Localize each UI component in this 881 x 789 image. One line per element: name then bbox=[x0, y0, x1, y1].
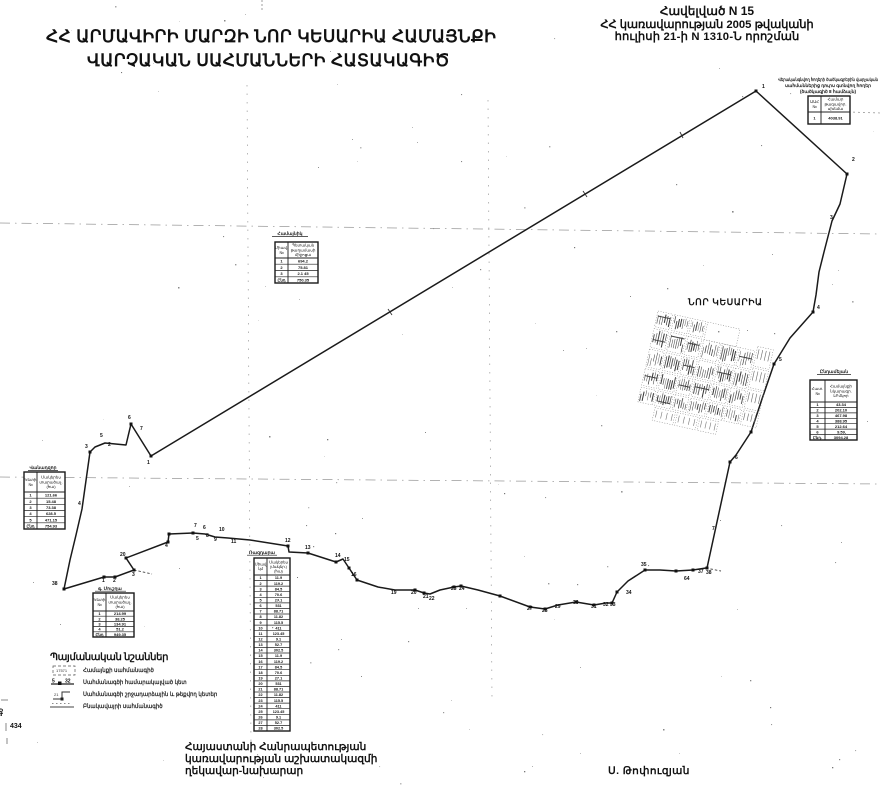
svg-text:2: 2 bbox=[259, 582, 261, 586]
svg-text:17: 17 bbox=[258, 665, 262, 669]
svg-text:11.82: 11.82 bbox=[274, 615, 283, 619]
svg-text:Վերականգնվող հողերի ծածկագրերի: Վերականգնվող հողերի ծածկագրերին վարչական bbox=[778, 76, 878, 83]
svg-text:միջոցա: միջոցա bbox=[295, 252, 311, 257]
svg-text:38: 38 bbox=[52, 581, 58, 587]
svg-text:20: 20 bbox=[120, 552, 126, 558]
svg-text:31: 31 bbox=[591, 604, 597, 610]
svg-text:12: 12 bbox=[258, 638, 262, 642]
svg-text:123.45: 123.45 bbox=[273, 710, 285, 714]
svg-text:(հա): (հա) bbox=[46, 484, 56, 489]
svg-text:531: 531 bbox=[275, 682, 281, 686]
svg-text:2.1 45: 2.1 45 bbox=[297, 271, 309, 276]
svg-text:70.6: 70.6 bbox=[275, 671, 282, 675]
svg-text:6: 6 bbox=[259, 604, 261, 608]
svg-text:1: 1 bbox=[102, 578, 105, 584]
svg-text:(հա): (հա) bbox=[274, 569, 283, 573]
svg-text:11.82: 11.82 bbox=[274, 693, 283, 697]
svg-text:64: 64 bbox=[684, 576, 690, 582]
svg-text:21: 21 bbox=[258, 688, 262, 692]
svg-text:27: 27 bbox=[258, 721, 262, 725]
svg-text:88.71: 88.71 bbox=[274, 610, 284, 614]
svg-text:27: 27 bbox=[527, 606, 533, 612]
svg-text:212.64: 212.64 bbox=[835, 424, 848, 429]
svg-text:123.45: 123.45 bbox=[273, 632, 285, 636]
svg-text:11.9: 11.9 bbox=[275, 576, 282, 580]
svg-text:22: 22 bbox=[429, 596, 435, 602]
svg-text:16: 16 bbox=[258, 660, 262, 664]
svg-text:11: 11 bbox=[231, 539, 237, 545]
svg-text:754.93: 754.93 bbox=[45, 523, 58, 528]
svg-text:15: 15 bbox=[344, 557, 350, 563]
svg-text:9: 9 bbox=[214, 537, 217, 543]
svg-text:№: № bbox=[28, 482, 32, 487]
svg-text:84.5: 84.5 bbox=[275, 665, 282, 669]
svg-text:13: 13 bbox=[305, 545, 311, 551]
svg-text:11: 11 bbox=[258, 632, 262, 636]
svg-text:1: 1 bbox=[762, 84, 765, 90]
svg-text:6: 6 bbox=[203, 525, 206, 531]
svg-text:5: 5 bbox=[196, 536, 199, 542]
svg-text:Ընդ: Ընդ bbox=[277, 277, 285, 282]
svg-text:28: 28 bbox=[542, 608, 548, 614]
svg-text:43.34: 43.34 bbox=[836, 402, 847, 407]
svg-text:կմ: կմ bbox=[258, 566, 263, 571]
svg-text:28: 28 bbox=[258, 727, 262, 731]
svg-text:5: 5 bbox=[52, 679, 55, 685]
svg-text:4: 4 bbox=[78, 501, 81, 507]
svg-text:Համայնիկ: Համայնիկ bbox=[277, 231, 302, 237]
svg-text:70.6: 70.6 bbox=[275, 593, 282, 597]
svg-text:9.59: 9.59 bbox=[837, 429, 846, 434]
svg-text:119.2: 119.2 bbox=[274, 660, 283, 664]
svg-text:30: 30 bbox=[573, 600, 579, 606]
svg-text:3094.28: 3094.28 bbox=[834, 435, 849, 440]
svg-text:9.1: 9.1 bbox=[276, 638, 281, 642]
svg-text:52.7: 52.7 bbox=[275, 721, 282, 725]
svg-text:17571: 17571 bbox=[56, 668, 68, 673]
svg-text:5: 5 bbox=[100, 433, 103, 439]
svg-text:14: 14 bbox=[335, 553, 341, 559]
svg-text:25: 25 bbox=[258, 710, 262, 714]
svg-text:11.9: 11.9 bbox=[275, 654, 282, 658]
svg-text:7: 7 bbox=[259, 610, 261, 614]
svg-text:38: 38 bbox=[706, 570, 712, 576]
svg-text:6: 6 bbox=[128, 415, 131, 421]
svg-text:3: 3 bbox=[85, 444, 88, 450]
svg-text:32: 32 bbox=[65, 679, 71, 685]
svg-text:75.81: 75.81 bbox=[298, 265, 309, 270]
svg-text:628.5: 628.5 bbox=[46, 511, 57, 516]
svg-text:20: 20 bbox=[258, 682, 262, 686]
svg-text:20: 20 bbox=[411, 590, 417, 596]
svg-text:115.5: 115.5 bbox=[274, 699, 283, 703]
svg-text:34: 34 bbox=[626, 590, 632, 596]
svg-text:Ընդ: Ընդ bbox=[26, 523, 34, 528]
svg-text:27.1: 27.1 bbox=[275, 677, 282, 681]
svg-text:2: 2 bbox=[108, 442, 111, 448]
svg-text:23: 23 bbox=[451, 586, 457, 592]
svg-text:4038.91: 4038.91 bbox=[828, 116, 843, 121]
svg-text:13: 13 bbox=[258, 643, 262, 647]
svg-text:33: 33 bbox=[610, 602, 616, 608]
svg-text:Ընդ: Ընդ bbox=[95, 632, 103, 637]
svg-text:10: 10 bbox=[258, 626, 262, 630]
svg-text:(մակեր.): (մակեր.) bbox=[270, 564, 288, 569]
svg-text:19: 19 bbox=[258, 677, 262, 681]
svg-text:302.5: 302.5 bbox=[274, 727, 284, 731]
svg-text:88.71: 88.71 bbox=[274, 688, 284, 692]
svg-text:ԼԲմկոր: ԼԲմկոր bbox=[833, 393, 849, 398]
svg-text:12: 12 bbox=[285, 538, 291, 544]
svg-text:սահմաններից դուրս գտնվող հողեր: սահմաններից դուրս գտնվող հողեր bbox=[785, 82, 871, 89]
svg-text:9: 9 bbox=[259, 621, 261, 625]
svg-text:29: 29 bbox=[555, 604, 561, 610]
svg-text:№: № bbox=[812, 104, 816, 109]
svg-text:18: 18 bbox=[258, 671, 262, 675]
svg-text:115.5: 115.5 bbox=[274, 621, 283, 625]
svg-text:10: 10 bbox=[219, 527, 225, 533]
svg-text:№: № bbox=[279, 250, 283, 255]
svg-text:32: 32 bbox=[603, 602, 609, 608]
svg-text:19: 19 bbox=[391, 590, 397, 596]
svg-text:3: 3 bbox=[132, 572, 135, 578]
svg-text:№: № bbox=[815, 391, 819, 396]
svg-text:15.48: 15.48 bbox=[46, 499, 57, 504]
svg-text:434: 434 bbox=[10, 723, 22, 730]
svg-text:302.5: 302.5 bbox=[274, 649, 284, 653]
svg-text:694.2: 694.2 bbox=[298, 259, 309, 264]
svg-text:388.95: 388.95 bbox=[835, 419, 848, 424]
svg-text:8: 8 bbox=[206, 533, 209, 539]
svg-text:411: 411 bbox=[275, 704, 281, 708]
svg-text:8: 8 bbox=[259, 615, 261, 619]
svg-text:5: 5 bbox=[779, 357, 782, 363]
svg-text:6: 6 bbox=[735, 455, 738, 461]
svg-text:411: 411 bbox=[275, 626, 281, 630]
svg-text:21: 21 bbox=[54, 692, 59, 697]
svg-text:9.1: 9.1 bbox=[276, 716, 281, 720]
svg-text:16: 16 bbox=[351, 572, 357, 578]
svg-text:1: 1 bbox=[147, 460, 150, 466]
svg-text:84.5: 84.5 bbox=[275, 587, 282, 591]
svg-text:35: 35 bbox=[641, 562, 647, 568]
svg-text:471.15: 471.15 bbox=[45, 517, 58, 522]
svg-text:949.35: 949.35 bbox=[114, 632, 127, 637]
svg-text:Ընդամեյան: Ընդամեյան bbox=[820, 369, 848, 375]
svg-text:7: 7 bbox=[194, 523, 197, 529]
svg-text:40: 40 bbox=[0, 708, 5, 716]
svg-text:23: 23 bbox=[258, 699, 262, 703]
svg-text:24: 24 bbox=[459, 586, 465, 592]
svg-text:№: № bbox=[97, 602, 101, 607]
svg-text:Ընդ.: Ընդ. bbox=[813, 435, 822, 440]
svg-text:3: 3 bbox=[259, 587, 261, 591]
svg-text:Վանադզոր: Վանադզոր bbox=[29, 465, 56, 471]
svg-text:5: 5 bbox=[259, 599, 261, 603]
svg-text:531: 531 bbox=[275, 604, 281, 608]
svg-text:7: 7 bbox=[712, 526, 715, 532]
svg-text:15: 15 bbox=[258, 654, 262, 658]
svg-text:սխեմա: սխեմա bbox=[828, 106, 844, 111]
svg-text:(հա): (հա) bbox=[115, 604, 125, 609]
svg-text:(ծածկագիծ 8 համձայն): (ծածկագիծ 8 համձայն) bbox=[800, 88, 857, 95]
svg-text:2: 2 bbox=[113, 578, 116, 584]
svg-text:26: 26 bbox=[258, 716, 262, 720]
svg-text:Մակերես: Մակերես bbox=[269, 559, 288, 564]
svg-text:750.35: 750.35 bbox=[297, 277, 310, 282]
svg-text:3: 3 bbox=[830, 215, 833, 221]
svg-text:2: 2 bbox=[852, 157, 855, 163]
svg-text:22: 22 bbox=[258, 693, 262, 697]
svg-text:4: 4 bbox=[817, 305, 820, 311]
svg-text:121.66: 121.66 bbox=[45, 493, 58, 498]
svg-text:1: 1 bbox=[259, 576, 261, 580]
svg-text:37: 37 bbox=[698, 569, 704, 575]
svg-text:52.7: 52.7 bbox=[275, 643, 282, 647]
svg-text:73.38: 73.38 bbox=[46, 505, 57, 510]
svg-text:Միավ: Միավ bbox=[255, 562, 267, 567]
svg-text:467.98: 467.98 bbox=[835, 413, 848, 418]
svg-text:119.2: 119.2 bbox=[274, 582, 283, 586]
svg-text:4: 4 bbox=[165, 543, 168, 549]
svg-text:21: 21 bbox=[423, 594, 429, 600]
svg-text:7: 7 bbox=[140, 426, 143, 432]
svg-text:202.10: 202.10 bbox=[835, 408, 848, 413]
